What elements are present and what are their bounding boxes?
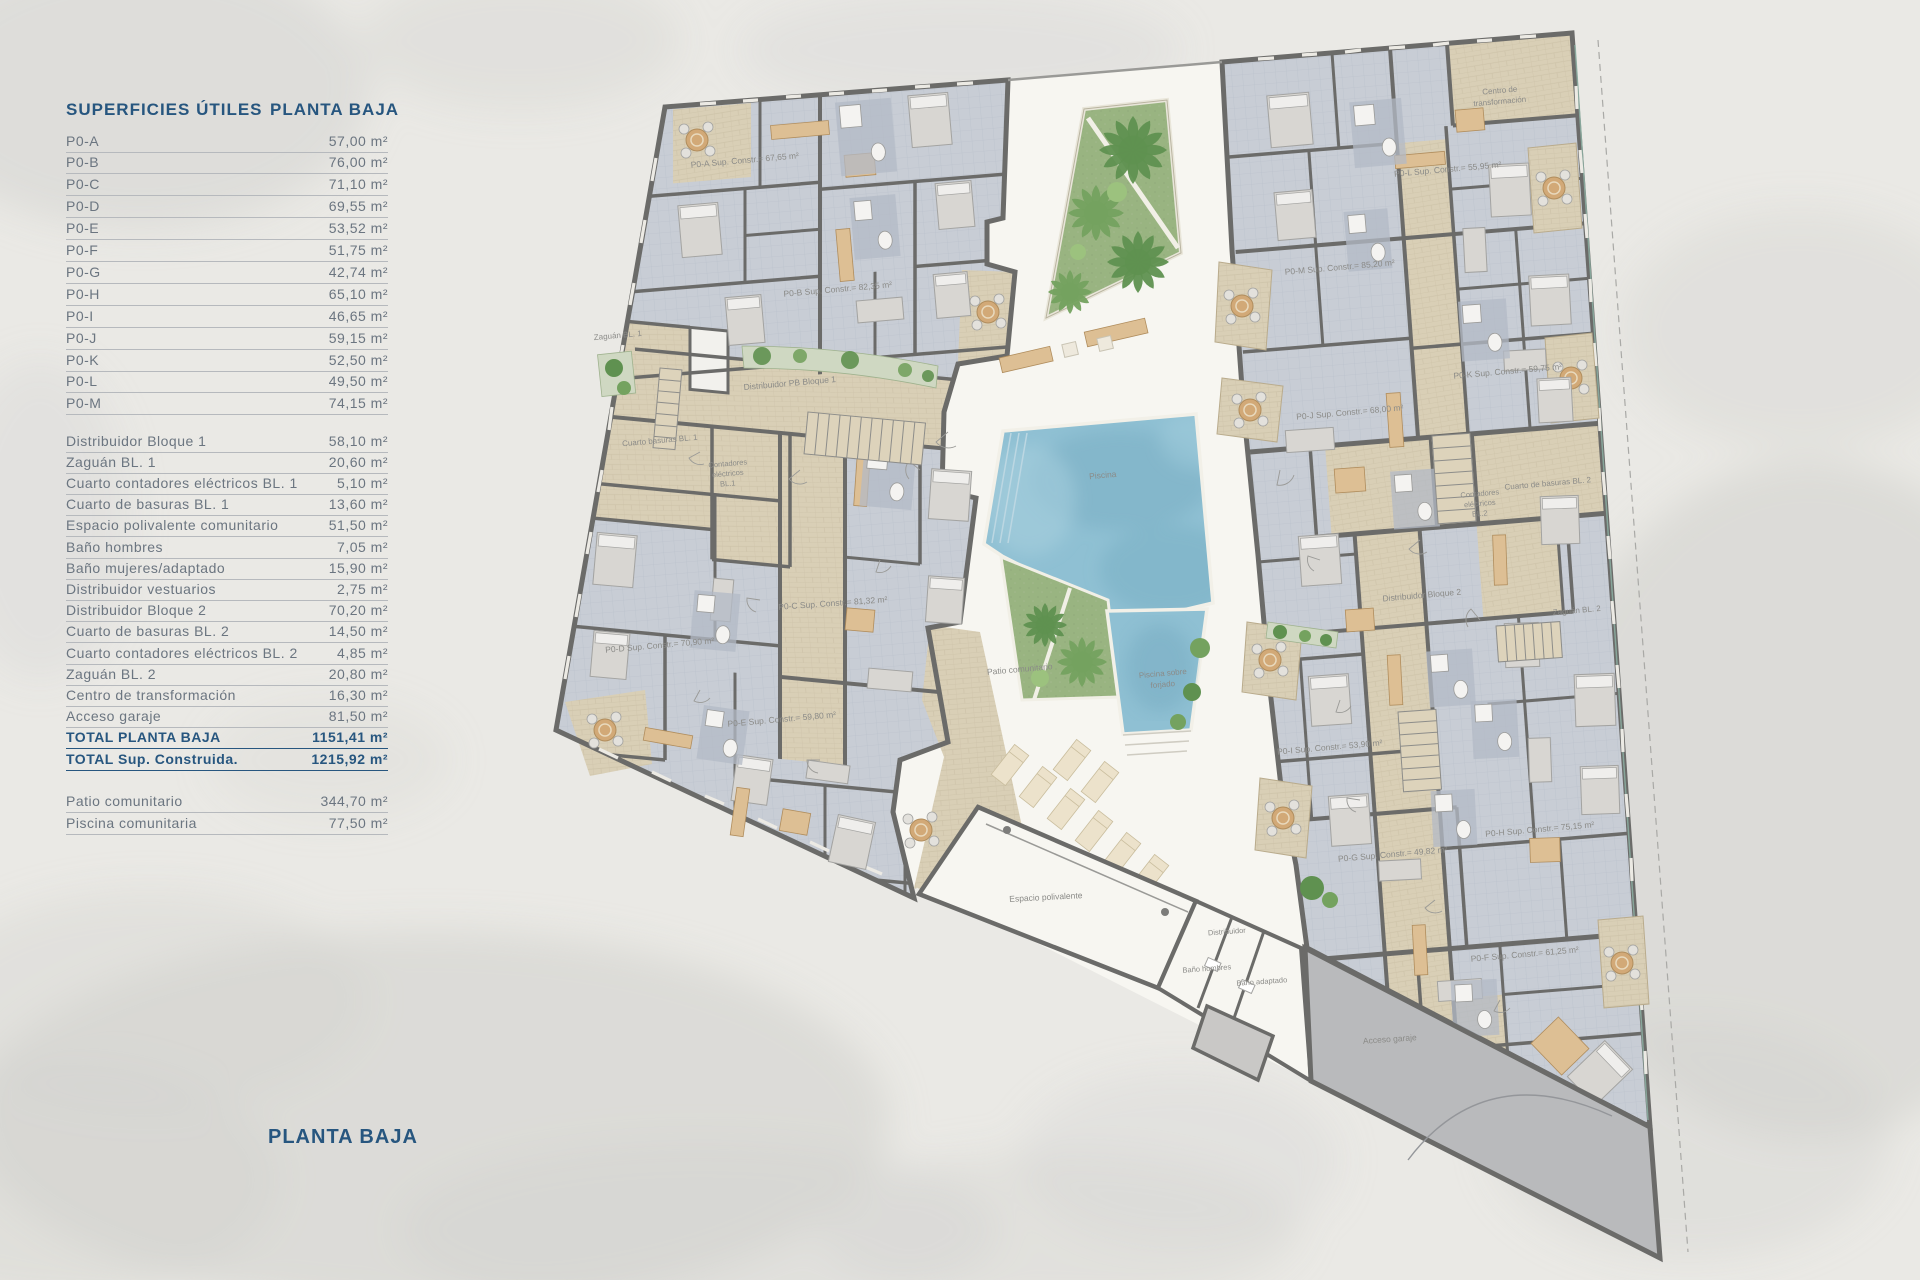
svg-text:BL.1: BL.1 xyxy=(720,478,736,488)
svg-text:BL.2: BL.2 xyxy=(1472,508,1488,518)
